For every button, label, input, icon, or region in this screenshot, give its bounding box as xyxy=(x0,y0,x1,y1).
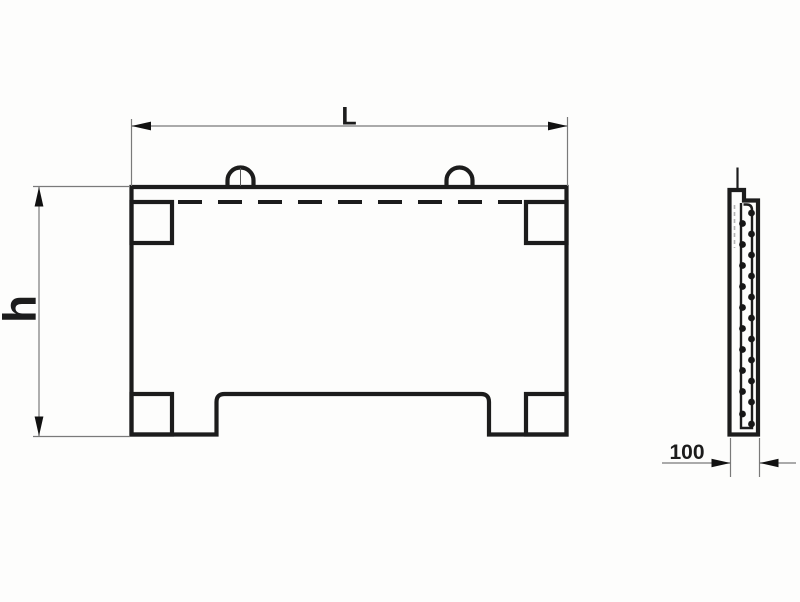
length-dimension-label: L xyxy=(341,103,356,131)
side-view xyxy=(730,168,759,435)
drawing-canvas: L h xyxy=(0,0,800,602)
panel-outline xyxy=(132,187,567,435)
lifting-loop-right xyxy=(447,168,473,188)
height-dimension-label: h xyxy=(0,295,46,323)
corner-plate-top-left xyxy=(132,202,173,243)
dimension-length: L xyxy=(132,103,568,187)
dimension-height: h xyxy=(0,187,130,437)
arrowhead-bottom-icon xyxy=(35,417,44,437)
corner-plate-top-right xyxy=(526,202,567,243)
dimension-thickness: 100 xyxy=(662,438,796,477)
lifting-loop-left xyxy=(228,168,254,188)
corner-plate-bottom-right xyxy=(526,394,567,435)
arrowhead-right-icon xyxy=(548,122,568,131)
arrowhead-top-icon xyxy=(35,187,44,207)
arrowhead-left-icon xyxy=(132,122,152,131)
front-view xyxy=(132,168,567,435)
technical-drawing: L h xyxy=(0,0,800,602)
arrowhead-left-icon xyxy=(712,459,731,467)
corner-plate-bottom-left xyxy=(132,394,173,435)
arrowhead-right-icon xyxy=(760,459,779,467)
thickness-dimension-label: 100 xyxy=(669,441,704,464)
